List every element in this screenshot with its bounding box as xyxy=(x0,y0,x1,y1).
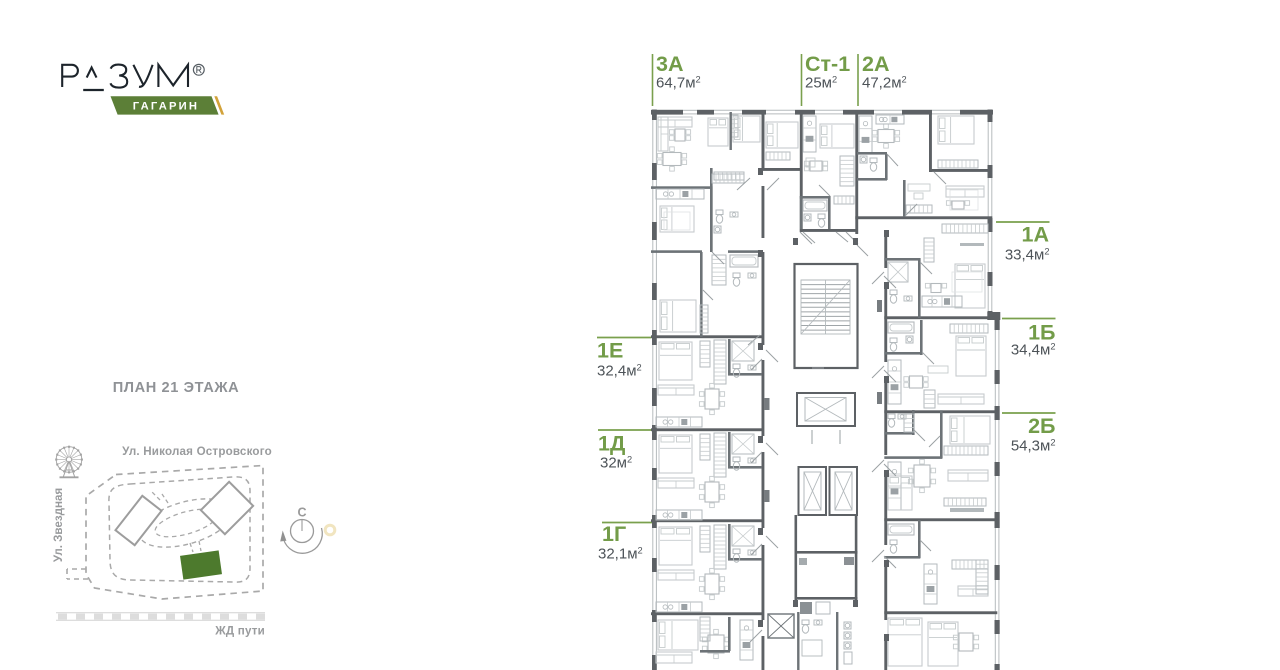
svg-text:ЖД пути: ЖД пути xyxy=(214,625,265,638)
svg-text:54,3м2: 54,3м2 xyxy=(1011,438,1056,455)
svg-text:1А: 1А xyxy=(1022,223,1049,247)
svg-text:33,4м2: 33,4м2 xyxy=(1005,247,1050,264)
svg-text:25м2: 25м2 xyxy=(805,74,837,91)
svg-text:64,7м2: 64,7м2 xyxy=(656,74,701,91)
svg-text:1Г: 1Г xyxy=(602,522,626,546)
svg-text:1Д: 1Д xyxy=(598,432,625,456)
svg-text:Ст-1: Ст-1 xyxy=(805,52,850,76)
svg-text:32,4м2: 32,4м2 xyxy=(597,363,642,380)
svg-text:1Е: 1Е xyxy=(597,339,623,363)
svg-text:34,4м2: 34,4м2 xyxy=(1011,342,1056,359)
svg-text:32,1м2: 32,1м2 xyxy=(598,546,643,563)
svg-text:3А: 3А xyxy=(656,52,683,76)
svg-text:Ул. Николая Островского: Ул. Николая Островского xyxy=(122,445,272,458)
svg-text:С: С xyxy=(297,506,306,520)
svg-text:ГАГАРИН: ГАГАРИН xyxy=(133,101,199,113)
svg-text:2А: 2А xyxy=(862,52,889,76)
svg-text:2Б: 2Б xyxy=(1028,414,1055,438)
svg-text:47,2м2: 47,2м2 xyxy=(862,74,907,91)
svg-text:32м2: 32м2 xyxy=(600,455,632,472)
svg-text:Ул. Звездная: Ул. Звездная xyxy=(52,488,65,562)
svg-text:ПЛАН 21 ЭТАЖА: ПЛАН 21 ЭТАЖА xyxy=(113,380,240,396)
